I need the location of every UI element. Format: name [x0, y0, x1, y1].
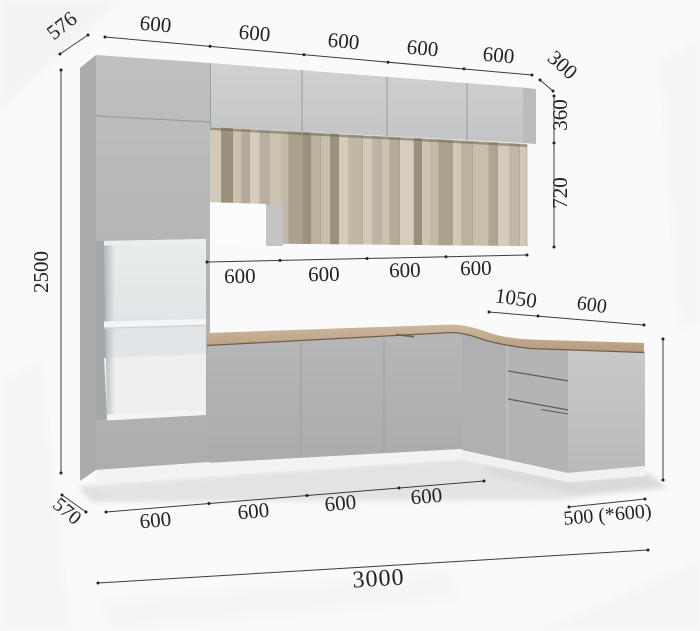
svg-text:600: 600 — [327, 28, 360, 55]
svg-text:600: 600 — [139, 11, 172, 38]
svg-text:600: 600 — [410, 483, 443, 510]
svg-text:360: 360 — [548, 99, 572, 131]
svg-text:600: 600 — [238, 20, 271, 47]
svg-text:3000: 3000 — [352, 564, 405, 593]
svg-text:720: 720 — [548, 177, 572, 209]
svg-text:600: 600 — [406, 35, 439, 62]
svg-text:600: 600 — [324, 490, 357, 517]
svg-text:2500: 2500 — [29, 251, 53, 293]
svg-text:600: 600 — [482, 42, 515, 69]
svg-text:600: 600 — [224, 264, 256, 289]
svg-text:600: 600 — [460, 256, 492, 281]
svg-text:600: 600 — [575, 292, 608, 318]
svg-text:600: 600 — [237, 498, 270, 525]
svg-text:600: 600 — [308, 262, 340, 287]
svg-text:600: 600 — [389, 258, 421, 283]
svg-text:600: 600 — [139, 507, 172, 534]
